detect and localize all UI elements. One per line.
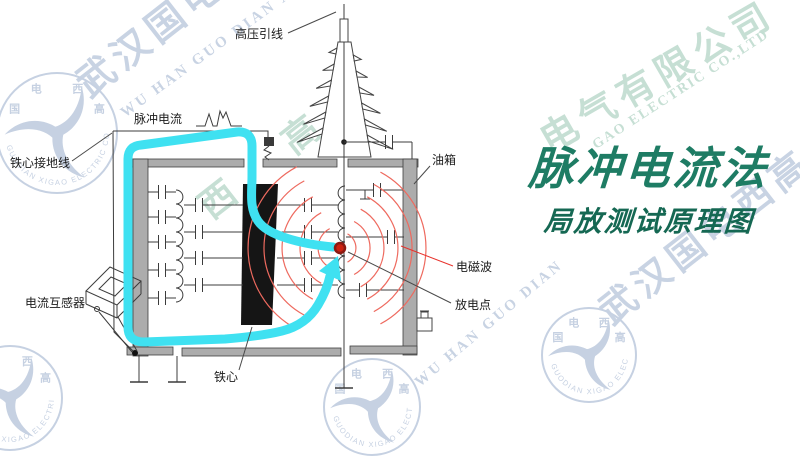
bushing-fin (353, 55, 361, 61)
leader-core-ground (72, 133, 112, 161)
seal-ring-path (0, 398, 54, 442)
bushing-fin (316, 80, 331, 88)
label-discharge-point: 放电点 (455, 297, 491, 312)
detection-impedance-zigzag (264, 146, 271, 160)
leader-hv-lead (288, 12, 336, 33)
label-current-transformer: 电流互感器 (25, 295, 85, 310)
bushing-fin (303, 112, 325, 124)
tank-bottom-mid (182, 348, 341, 356)
label-iron-core: 铁心 (214, 370, 238, 384)
tank-left-wall (133, 159, 148, 356)
bushing-fin (329, 48, 337, 54)
discharge-point-dot (335, 243, 345, 253)
em-arc (367, 197, 398, 299)
tank-valve (417, 311, 432, 331)
label-pulse-current: 脉冲电流 (134, 111, 182, 126)
em-arc (361, 209, 384, 287)
tank-top-rail-mid (263, 159, 337, 167)
em-arc (348, 234, 356, 262)
detection-impedance-box (264, 137, 274, 146)
bushing-fin (359, 87, 374, 95)
tank-bottom-right (350, 346, 417, 354)
earth-grounds (130, 355, 353, 388)
iron-core-block (241, 184, 278, 325)
bushing-fin (323, 64, 335, 70)
bushing-fin (364, 119, 386, 131)
label-hv-lead: 高压引线 (235, 26, 283, 41)
tank-right-wall (403, 159, 417, 355)
bushing-top-cap (340, 19, 348, 42)
page-subtitle: 局放测试原理图 (497, 200, 800, 240)
bushing-fin (297, 128, 323, 142)
title-block: 脉冲电流法 局放测试原理图 (498, 144, 800, 240)
bushing-fin (310, 96, 329, 106)
seal-ring-path (332, 407, 412, 447)
pd-test-principle-diagram: 武汉国电WU HAN GUO DIAN XI西 高电气有限公司GAO ELECT… (0, 0, 800, 400)
label-core-ground-wire: 铁心接地线 (10, 155, 70, 170)
seal-ring-text: GUODIAN XIGAO ELECTRIC CO.,LTD (331, 400, 414, 449)
bushing-fin (356, 71, 368, 77)
hv-bushing (297, 4, 393, 157)
label-em-wave: 电磁波 (456, 259, 492, 274)
bushing-fin (362, 103, 381, 113)
label-oil-tank: 油箱 (432, 152, 456, 167)
winding-coil (176, 190, 183, 302)
seal-blade (358, 399, 405, 446)
pulse-waveform (196, 111, 242, 126)
page-title: 脉冲电流法 (496, 144, 800, 194)
